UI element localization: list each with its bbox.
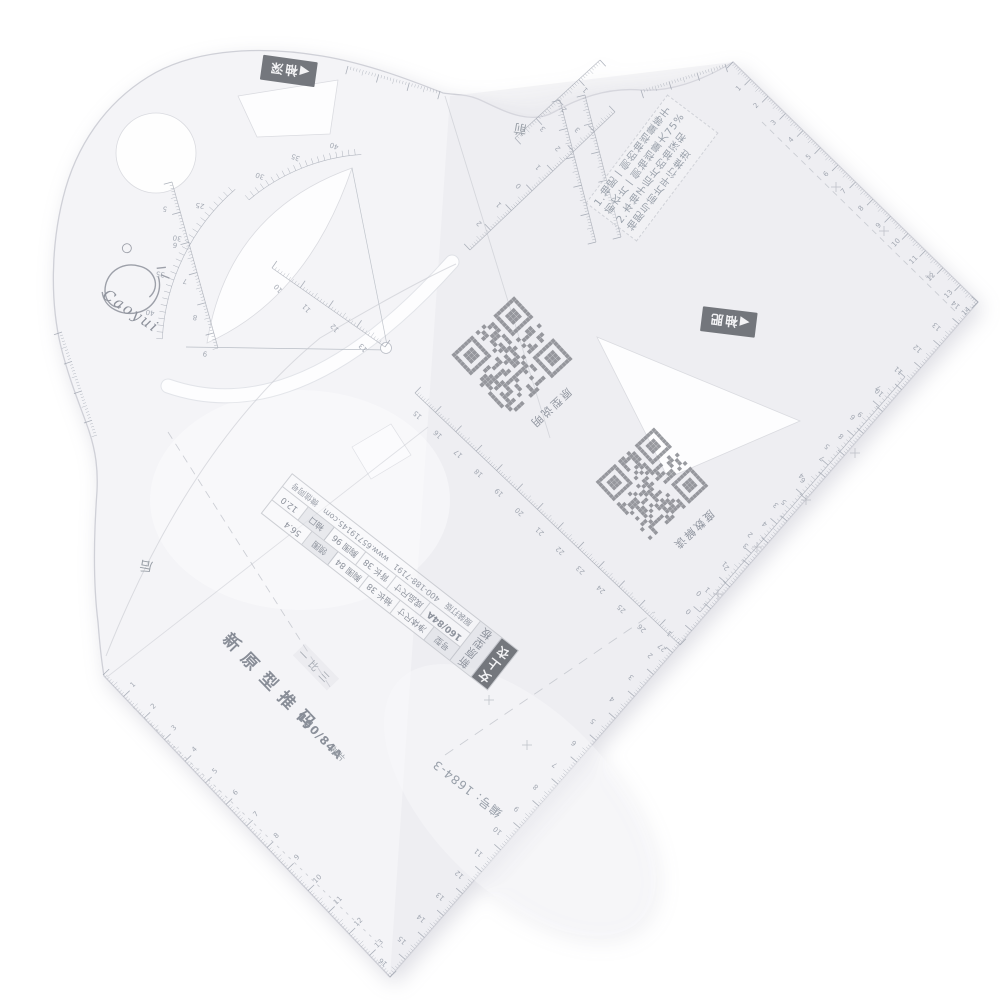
product-photo: 1234567891011121314141312111098765432101… xyxy=(0,0,1000,1000)
svg-text:35: 35 xyxy=(155,269,165,278)
sheet-highlight-left xyxy=(150,390,450,610)
circle-cutout xyxy=(116,113,196,193)
pattern-ruler-photo: 1234567891011121314141312111098765432101… xyxy=(0,0,1000,1000)
svg-text:25: 25 xyxy=(195,201,205,210)
svg-text:40: 40 xyxy=(145,308,155,317)
triangle-vertex-hole xyxy=(381,343,392,354)
svg-text:30: 30 xyxy=(172,233,182,242)
